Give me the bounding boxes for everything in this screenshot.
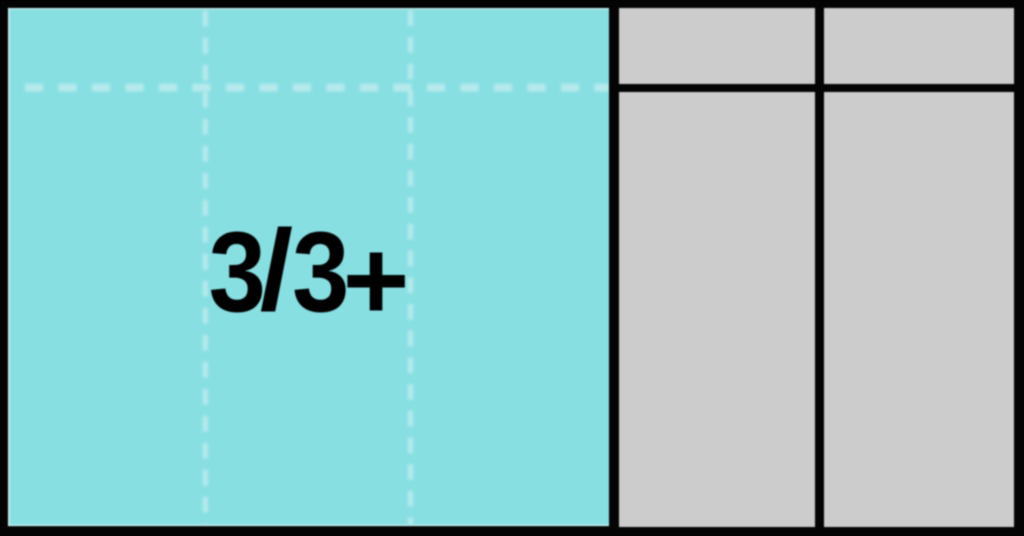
svg-text:3: 3 [209, 208, 266, 336]
svg-text:/: / [260, 206, 293, 334]
svg-text:+: + [343, 216, 410, 344]
svg-text:3: 3 [292, 208, 349, 336]
